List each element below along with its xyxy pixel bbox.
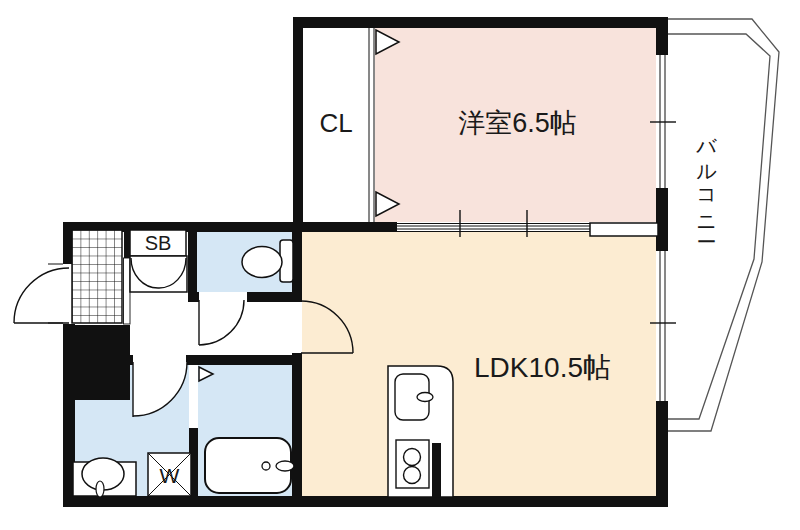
washer-label: W xyxy=(148,455,191,496)
balcony-outline xyxy=(668,19,779,431)
door-entrance xyxy=(14,264,69,323)
bathtub-fixture xyxy=(205,438,294,493)
closet-label: CL xyxy=(303,108,369,139)
balcony-label: バルコニー xyxy=(694,124,721,334)
door-toilet xyxy=(199,300,244,345)
ldk-label: LDK10.5帖 xyxy=(430,349,655,387)
kitchen-wall-stub xyxy=(432,443,441,497)
entrance-grid xyxy=(72,230,130,324)
floor-plan-drawing xyxy=(0,0,800,530)
floor-plan: CL 洋室6.5帖 LDK10.5帖 SB W バルコニー xyxy=(0,0,800,530)
sink-fixture xyxy=(73,458,136,497)
bedroom-label: 洋室6.5帖 xyxy=(395,105,640,141)
shoebox-label: SB xyxy=(130,231,186,256)
kitchen-stove xyxy=(396,440,429,488)
kitchen-faucet xyxy=(417,393,433,402)
